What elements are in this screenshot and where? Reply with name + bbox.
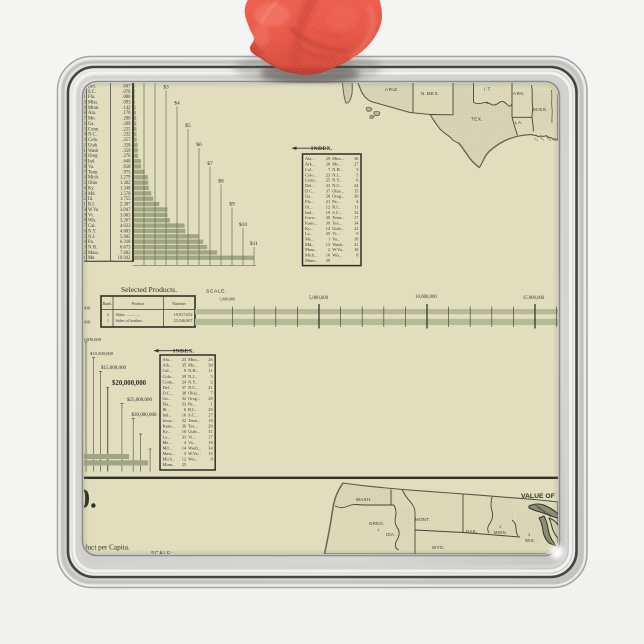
svg-text:3.267: 3.267	[120, 219, 131, 224]
svg-text:Mass...: Mass...	[305, 247, 318, 252]
svg-text:Ala...: Ala...	[305, 156, 315, 161]
svg-text:Oreg...: Oreg...	[188, 396, 200, 401]
svg-text:Ill.: Ill.	[88, 197, 93, 202]
svg-text:Number: Number	[172, 301, 186, 306]
svg-text:Ala.: Ala.	[88, 111, 96, 116]
svg-text:Fla...: Fla...	[163, 401, 172, 406]
svg-text:3.063: 3.063	[120, 213, 131, 218]
svg-text:Del...: Del...	[163, 385, 173, 390]
svg-text:.080: .080	[122, 95, 131, 100]
svg-text:Me...: Me...	[163, 440, 172, 445]
svg-text:Mo.: Mo.	[88, 117, 96, 122]
svg-text:Selected Products.: Selected Products.	[121, 285, 177, 294]
svg-text:.975: .975	[122, 170, 131, 175]
svg-text:N.H.: N.H.	[88, 246, 97, 251]
svg-text:$25,000,000: $25,000,000	[127, 398, 153, 403]
svg-text:7.602: 7.602	[120, 251, 131, 256]
svg-text:Fla...: Fla...	[305, 199, 314, 204]
svg-text:Miss...: Miss...	[188, 357, 200, 362]
svg-text:31: 31	[208, 429, 212, 434]
svg-text:.093: .093	[122, 101, 131, 106]
svg-text:Ohio: Ohio	[88, 181, 98, 186]
svg-text:.209: .209	[122, 122, 131, 127]
svg-text:Rank: Rank	[103, 301, 113, 306]
svg-text:Miss...: Miss...	[332, 156, 344, 161]
svg-text:N.J...: N.J...	[332, 172, 341, 177]
svg-text:Mass.: Mass.	[88, 251, 99, 256]
svg-text:.200: .200	[122, 117, 131, 122]
svg-text:ARK.: ARK.	[513, 91, 526, 96]
svg-text:La...: La...	[305, 231, 313, 236]
svg-text:21: 21	[208, 385, 212, 390]
svg-text:$5: $5	[185, 122, 191, 129]
svg-text:Ohio...: Ohio...	[188, 390, 200, 395]
svg-text:N.C...: N.C...	[188, 385, 199, 390]
svg-text:W.Va...: W.Va...	[188, 451, 201, 456]
svg-text:Colo...: Colo...	[305, 172, 317, 177]
svg-text:1.302: 1.302	[120, 181, 131, 186]
svg-text:$10: $10	[239, 221, 247, 228]
svg-text:Wis...: Wis...	[332, 253, 342, 258]
svg-text:MINN: MINN	[494, 530, 506, 535]
svg-text:5,000,000: 5,000,000	[309, 296, 329, 301]
svg-text:Ala...: Ala...	[163, 357, 173, 362]
svg-text:Utah...: Utah...	[332, 226, 344, 231]
svg-text:1.570: 1.570	[120, 192, 131, 197]
svg-text:N.Y...: N.Y...	[188, 379, 198, 384]
svg-text:Colo.: Colo.	[88, 138, 98, 143]
svg-text:R.I.: R.I.	[88, 203, 95, 208]
svg-text:Ky.: Ky.	[88, 186, 95, 191]
svg-text:Cal...: Cal...	[305, 167, 314, 172]
svg-text:Me...: Me...	[305, 237, 314, 242]
svg-text:Ga.: Ga.	[88, 122, 95, 127]
svg-text:Cal.: Cal.	[88, 224, 96, 229]
svg-text:Ill...: Ill...	[305, 204, 312, 209]
svg-text:Ark...: Ark...	[305, 162, 315, 167]
svg-text:MISS.: MISS.	[533, 107, 548, 112]
svg-text:Md.: Md.	[88, 192, 96, 197]
svg-text:Del...: Del...	[305, 183, 315, 188]
svg-text:6.673: 6.673	[120, 246, 131, 251]
svg-text:ARIZ.: ARIZ.	[385, 87, 399, 92]
svg-text:32: 32	[182, 396, 186, 401]
svg-text:5.905: 5.905	[120, 235, 131, 240]
svg-text:Tenn.: Tenn.	[88, 170, 98, 175]
svg-text:Oreg.: Oreg.	[88, 154, 99, 159]
svg-text:N.C.: N.C.	[88, 133, 97, 138]
svg-text:Ind...: Ind...	[305, 210, 314, 215]
svg-text:N.H...: N.H...	[188, 368, 199, 373]
svg-text:21: 21	[326, 199, 330, 204]
svg-text:N.MEX.: N.MEX.	[421, 91, 440, 96]
svg-text:.225: .225	[122, 127, 131, 132]
svg-text:WASH.: WASH.	[356, 497, 372, 502]
svg-text:11: 11	[354, 204, 358, 209]
svg-text:Vt...: Vt...	[332, 231, 340, 236]
svg-text:S.C...: S.C...	[188, 412, 198, 417]
svg-text:1: 1	[210, 401, 212, 406]
svg-text:Mich...: Mich...	[305, 253, 318, 258]
svg-text:Mo...: Mo...	[332, 162, 341, 167]
svg-text:S.C...: S.C...	[332, 210, 342, 215]
svg-text:$30,000,000: $30,000,000	[132, 413, 158, 418]
svg-text:Kans...: Kans...	[305, 221, 317, 226]
svg-text:Sides of leather..: Sides of leather..	[116, 318, 144, 323]
svg-text:I.T.: I.T.	[484, 87, 492, 92]
svg-text:Ind.: Ind.	[88, 160, 95, 165]
svg-text:Ky...: Ky...	[305, 226, 313, 231]
svg-text:Oreg...: Oreg...	[332, 194, 344, 199]
svg-text:N.J.: N.J.	[88, 235, 96, 240]
svg-text:.078: .078	[122, 90, 131, 95]
svg-text:WYO.: WYO.	[432, 545, 445, 550]
svg-text:Mass...: Mass...	[163, 451, 176, 456]
svg-text:R.I...: R.I...	[188, 407, 197, 412]
svg-text:N.Y...: N.Y...	[332, 178, 342, 183]
svg-text:4.623: 4.623	[120, 224, 131, 229]
svg-text:N.H...: N.H...	[332, 167, 343, 172]
svg-text:.142: .142	[122, 106, 131, 111]
svg-text:.359: .359	[122, 149, 131, 154]
svg-text:Utah...: Utah...	[188, 429, 200, 434]
svg-text:4.683: 4.683	[120, 229, 131, 234]
svg-text:Minn.: Minn.	[88, 106, 99, 111]
svg-text:Ark...: Ark...	[163, 363, 173, 368]
svg-text:Mo...: Mo...	[188, 363, 197, 368]
svg-text:Ill...: Ill...	[163, 407, 170, 412]
svg-text:D.C...: D.C...	[163, 390, 174, 395]
svg-text:Kans...: Kans...	[163, 424, 175, 429]
svg-text:Minn...: Minn...	[163, 462, 176, 467]
svg-text:Vt...: Vt...	[188, 435, 196, 440]
svg-text:WIS.: WIS.	[525, 538, 535, 543]
svg-text:MONT.: MONT.	[415, 517, 430, 522]
svg-text:INDEX.: INDEX.	[173, 349, 195, 355]
svg-text:DAK.: DAK.	[466, 529, 477, 534]
svg-text:Pa...: Pa...	[188, 401, 196, 406]
svg-text:INDEX.: INDEX.	[311, 146, 333, 152]
svg-text:$8: $8	[218, 178, 224, 185]
svg-text:Skins ..............: Skins ..............	[116, 312, 141, 317]
svg-text:W.Va: W.Va	[88, 208, 99, 213]
svg-text:Product: Product	[131, 301, 145, 306]
svg-text:Conn...: Conn...	[163, 379, 176, 384]
svg-text:.658: .658	[122, 165, 131, 170]
svg-text:$15,000,000: $15,000,000	[101, 366, 127, 371]
svg-text:IDA.: IDA.	[386, 532, 396, 537]
svg-text:Ga...: Ga...	[163, 396, 171, 401]
svg-text:La...: La...	[163, 435, 171, 440]
svg-text:Wash...: Wash...	[332, 242, 345, 247]
svg-text:12: 12	[182, 457, 186, 462]
svg-text:1: 1	[328, 237, 330, 242]
svg-text:W.Va...: W.Va...	[332, 247, 345, 252]
svg-text:N.C...: N.C...	[332, 183, 343, 188]
svg-text:.328: .328	[122, 144, 131, 149]
svg-text:2.307: 2.307	[120, 203, 131, 208]
svg-text:.376: .376	[122, 154, 131, 159]
svg-text:Wis.: Wis.	[88, 219, 97, 224]
svg-text:Iowa...: Iowa...	[305, 215, 317, 220]
svg-text:15,000,000: 15,000,000	[523, 296, 545, 301]
svg-text:Ky...: Ky...	[163, 429, 171, 434]
svg-text:2: 2	[107, 312, 109, 317]
svg-text:22: 22	[354, 226, 358, 231]
svg-text:TEX.: TEX.	[471, 117, 483, 122]
svg-text:Mich.: Mich.	[88, 176, 99, 181]
svg-text:Wis...: Wis...	[188, 457, 198, 462]
svg-text:N.Y.: N.Y.	[88, 229, 97, 234]
svg-text:$4: $4	[174, 100, 180, 107]
svg-text:6.318: 6.318	[120, 240, 131, 245]
svg-text:$9: $9	[229, 201, 235, 208]
svg-text:Pa.: Pa.	[88, 240, 94, 245]
svg-text:Ind...: Ind...	[163, 412, 172, 417]
svg-text:.257: .257	[122, 138, 131, 143]
svg-text:VALUE OF: VALUE OF	[521, 493, 555, 500]
svg-text:1.755: 1.755	[120, 197, 131, 202]
svg-text:$7: $7	[207, 160, 213, 167]
svg-text:Tenn...: Tenn...	[188, 418, 200, 423]
svg-text:11: 11	[208, 368, 212, 373]
svg-text:Va...: Va...	[332, 237, 340, 242]
svg-text:S.C.: S.C.	[88, 90, 96, 95]
svg-text:21: 21	[354, 242, 358, 247]
svg-text:.640: .640	[122, 160, 131, 165]
svg-text:Ohio...: Ohio...	[332, 188, 344, 193]
svg-text:Pa...: Pa...	[332, 199, 340, 204]
svg-text:Colo...: Colo...	[163, 374, 175, 379]
svg-text:N.J...: N.J...	[188, 374, 197, 379]
svg-text:OREG.: OREG.	[369, 521, 385, 526]
svg-text:Va...: Va...	[188, 440, 196, 445]
svg-text:1.279: 1.279	[120, 176, 131, 181]
svg-text:Fla.: Fla.	[88, 95, 95, 100]
svg-text:22: 22	[182, 418, 186, 423]
svg-text:Conn.: Conn.	[88, 127, 99, 132]
svg-text:Wash: Wash	[88, 149, 99, 154]
svg-text:Vt.: Vt.	[88, 213, 94, 218]
svg-text:10,000,000: 10,000,000	[415, 295, 437, 300]
svg-text:Ga...: Ga...	[305, 194, 313, 199]
svg-text:1: 1	[486, 100, 489, 105]
svg-text:$20,000,000: $20,000,000	[112, 380, 147, 387]
svg-text:2: 2	[328, 247, 330, 252]
svg-text:.170: .170	[122, 111, 131, 116]
svg-text:Iowa...: Iowa...	[163, 418, 175, 423]
svg-text:Utah: Utah	[88, 144, 98, 149]
svg-text:LA.: LA.	[515, 120, 523, 125]
svg-text:Md...: Md...	[163, 446, 172, 451]
svg-text:10.942: 10.942	[118, 256, 132, 261]
svg-text:Conn...: Conn...	[305, 178, 318, 183]
svg-text:Tenn...: Tenn...	[332, 215, 344, 220]
svg-text:$6: $6	[196, 141, 202, 148]
svg-text:D.C...: D.C...	[305, 188, 316, 193]
svg-text:Tex...: Tex...	[188, 424, 198, 429]
svg-text:Va.: Va.	[88, 165, 94, 170]
svg-text:Mich...: Mich...	[163, 457, 176, 462]
svg-text:Minn...: Minn...	[305, 258, 318, 263]
svg-text:.232: .232	[122, 133, 131, 138]
svg-text:Me.: Me.	[88, 256, 95, 261]
svg-text:12: 12	[326, 204, 330, 209]
svg-text:3.047: 3.047	[120, 208, 131, 213]
svg-text:$11: $11	[250, 240, 258, 247]
svg-text:SCALE:: SCALE:	[206, 289, 227, 295]
svg-text:Miss.: Miss.	[88, 101, 98, 106]
svg-text:1: 1	[107, 318, 109, 323]
svg-text:Tex...: Tex...	[332, 221, 342, 226]
svg-text:Wash...: Wash...	[188, 446, 201, 451]
svg-text:Cal...: Cal...	[163, 368, 172, 373]
svg-text:2: 2	[210, 379, 212, 384]
svg-text:R.I...: R.I...	[332, 204, 341, 209]
svg-text:1.348: 1.348	[120, 186, 131, 191]
svg-text:32: 32	[354, 210, 358, 215]
svg-text:Md...: Md...	[305, 242, 314, 247]
